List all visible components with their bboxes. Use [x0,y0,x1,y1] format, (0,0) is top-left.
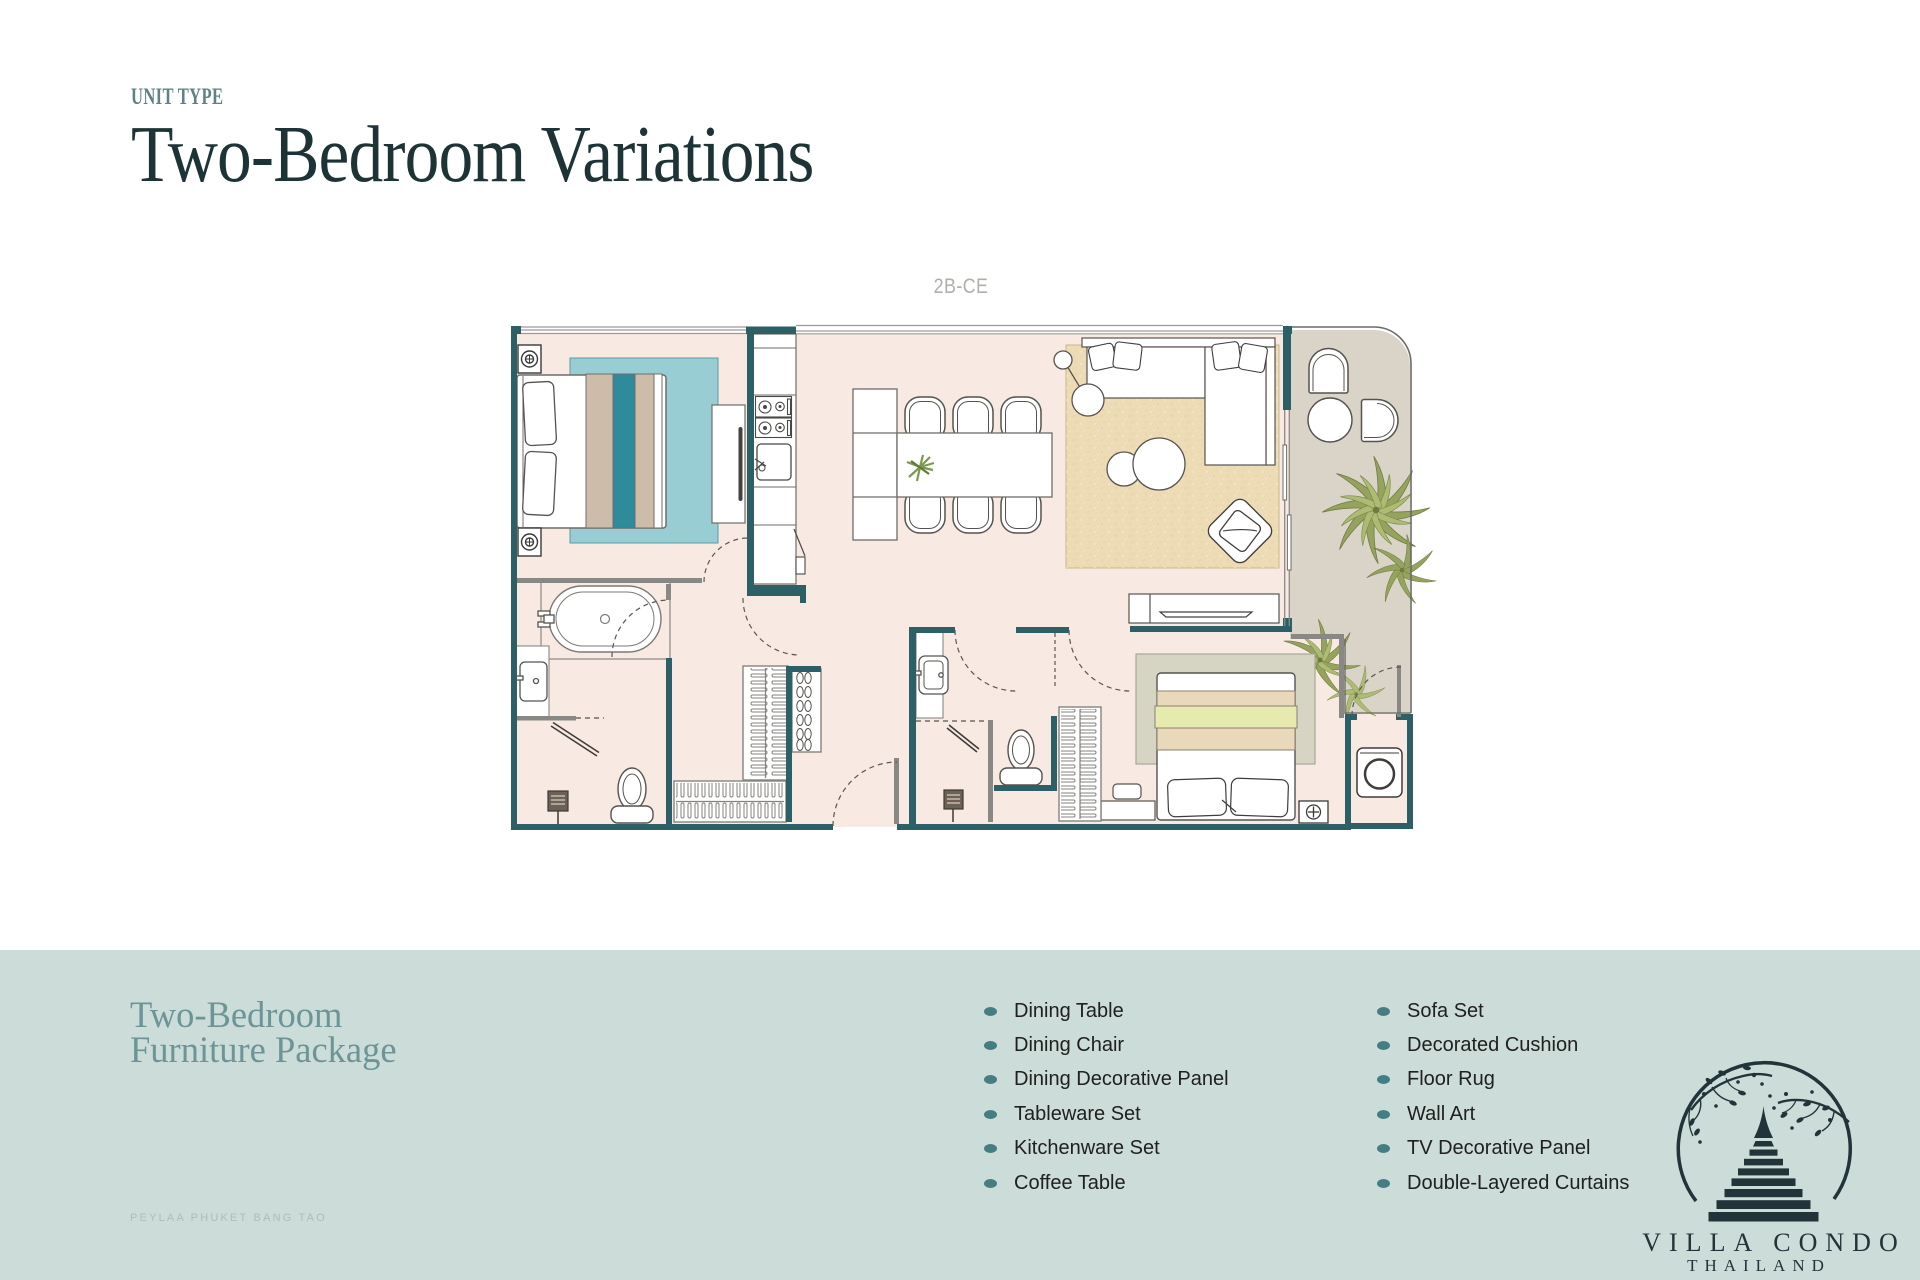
svg-text:VILLA CONDO: VILLA CONDO [1642,1228,1906,1257]
svg-text:THAILAND: THAILAND [1687,1256,1831,1275]
